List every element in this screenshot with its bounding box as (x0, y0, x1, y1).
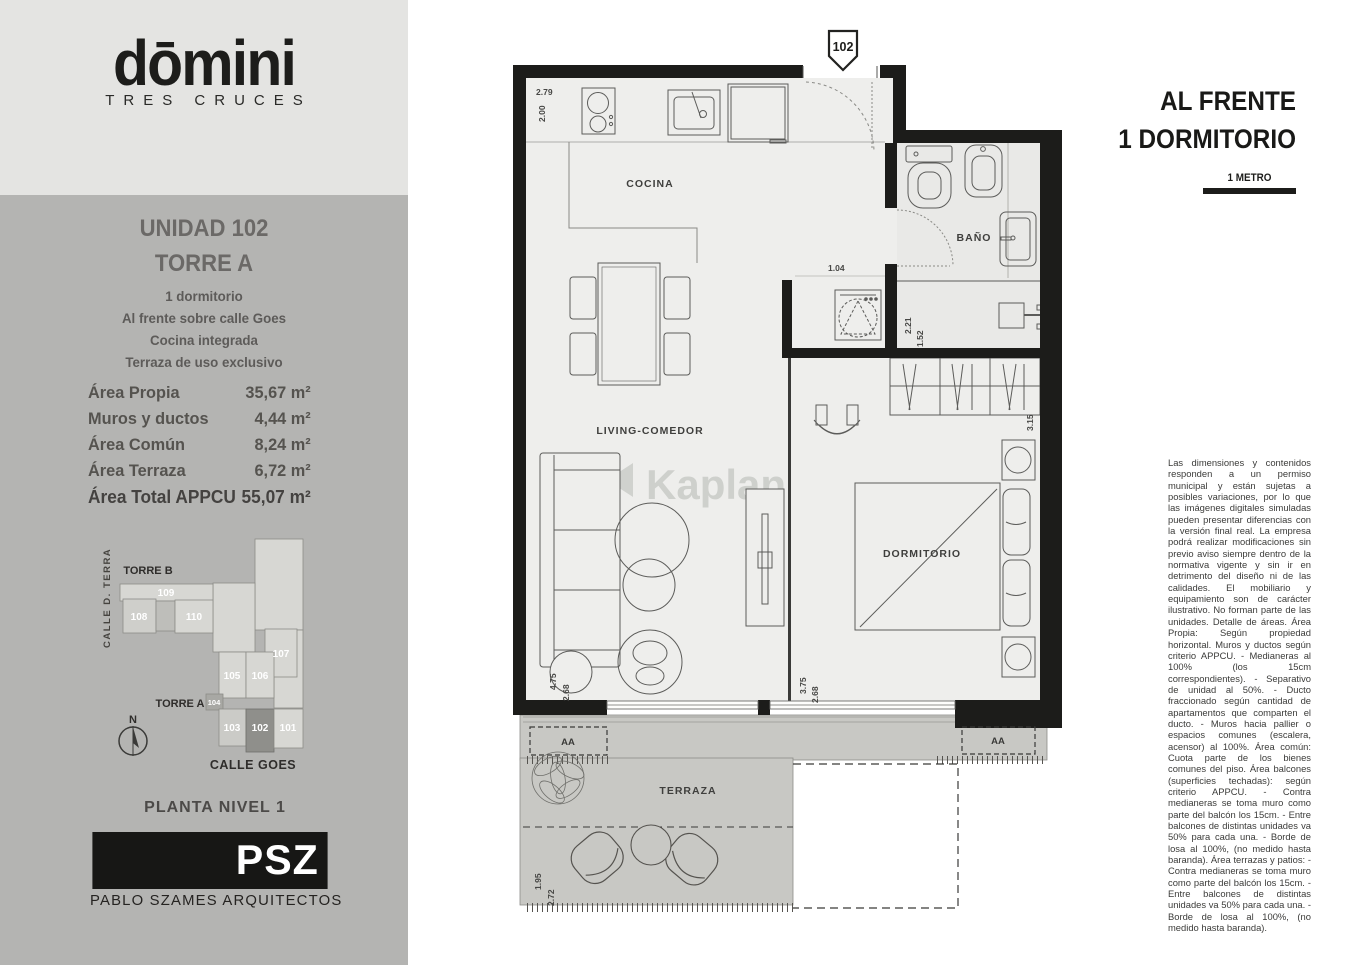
feature-item: Al frente sobre calle Goes (10, 307, 398, 329)
area-label: Área Total APPCU (88, 484, 236, 510)
calle-goes-label: CALLE GOES (210, 758, 296, 772)
areas-table: Área Propia 35,67 m² Muros y ductos 4,44… (88, 380, 320, 510)
area-value: 4,44 m² (254, 406, 310, 432)
plan-heading-line1: AL FRENTE (1066, 82, 1296, 120)
scale-label: 1 METRO (1208, 172, 1292, 184)
floor-plan: Kaplan (470, 10, 1080, 960)
dim-label: 2.79 (536, 87, 553, 97)
site-unit-label: 103 (224, 723, 241, 734)
terraza-label: TERRAZA (659, 785, 716, 797)
railing-hatch (933, 756, 1047, 764)
dormitorio-label: DORMITORIO (883, 548, 961, 560)
dim-label: 4.75 (548, 673, 558, 690)
bano-label: BAÑO (957, 231, 992, 244)
dim-label: 2.00 (537, 105, 547, 122)
unit-features: 1 dormitorio Al frente sobre calle Goes … (0, 285, 408, 373)
bathroom-floor (897, 143, 1040, 348)
feature-item: Cocina integrada (10, 329, 398, 351)
architect-block: PSZ PABLO SZAMES ARQUITECTOS (90, 832, 330, 909)
site-unit-label: 105 (224, 671, 241, 682)
wall-bath-top (893, 130, 1062, 143)
site-unit-label: 104 (208, 698, 221, 707)
site-unit-label: 107 (273, 649, 290, 660)
area-value: 55,07 m² (242, 484, 311, 510)
site-unit-label: 102 (252, 723, 269, 734)
site-core (156, 601, 175, 631)
north-label: N (129, 714, 137, 726)
partition-living-bedroom (788, 358, 791, 703)
railing-hatch (523, 903, 795, 912)
site-block (255, 539, 303, 630)
unit-marker-number: 102 (833, 40, 854, 54)
nightstand (1002, 440, 1035, 480)
brand-logo-block: dōmini TRES CRUCES (0, 0, 408, 195)
dim-label: 3.15 (1025, 414, 1035, 431)
unit-title: UNIDAD 102 (16, 215, 391, 243)
area-value: 8,24 m² (254, 432, 310, 458)
sofa (540, 453, 620, 693)
wall-bottom-post (758, 700, 770, 715)
site-block (213, 583, 255, 652)
brochure-sheet: dōmini TRES CRUCES UNIDAD 102 TORRE A 1 … (0, 0, 1365, 965)
tv-unit (746, 489, 784, 626)
area-label: Área Terraza (88, 458, 186, 484)
area-row: Área Propia 35,67 m² (88, 380, 311, 406)
area-row-total: Área Total APPCU 55,07 m² (88, 484, 311, 510)
sidebar: dōmini TRES CRUCES UNIDAD 102 TORRE A 1 … (0, 0, 408, 965)
dim-label: 1.04 (828, 263, 845, 273)
terrace-table (631, 825, 671, 865)
wall-bottom-right (955, 700, 1060, 728)
area-label: Área Común (88, 432, 185, 458)
exclusive-patio-outline (793, 764, 958, 908)
architect-logo: PSZ (92, 832, 327, 889)
area-row: Área Común 8,24 m² (88, 432, 311, 458)
unit-tower: TORRE A (16, 250, 391, 278)
torre-a-label: TORRE A (156, 698, 205, 710)
nightstand (1002, 637, 1035, 677)
plan-heading: AL FRENTE 1 DORMITORIO (1066, 82, 1296, 158)
railing-hatch (523, 756, 608, 764)
ac-label-right: AA (991, 736, 1005, 747)
area-value: 35,67 m² (245, 380, 310, 406)
site-key-plan: 109 108 110 107 105 106 104 103 102 101 … (85, 525, 335, 825)
site-unit-label: 109 (158, 588, 175, 599)
ac-label-left: AA (561, 737, 575, 748)
wall-right (1040, 130, 1062, 728)
window-band (607, 701, 955, 709)
living-label: LIVING-COMEDOR (596, 425, 703, 437)
area-label: Área Propia (88, 380, 180, 406)
exterior-mask (906, 60, 1066, 130)
dim-label: 2.21 (903, 317, 913, 334)
site-unit-label: 101 (280, 723, 297, 734)
wall-top (513, 65, 803, 78)
site-unit-label: 106 (252, 671, 269, 682)
torre-b-label: TORRE B (123, 565, 172, 577)
feature-item: 1 dormitorio (10, 285, 398, 307)
dim-label: 1.95 (533, 873, 543, 890)
dim-label: 1.52 (915, 330, 925, 347)
dim-label: 2.72 (546, 889, 556, 906)
planta-label: PLANTA NIVEL 1 (144, 799, 286, 816)
dim-label: 2.68 (810, 686, 820, 703)
area-row: Muros y ductos 4,44 m² (88, 406, 311, 432)
disclaimer-text: Las dimensiones y contenidos responden a… (1168, 457, 1311, 933)
area-label: Muros y ductos (88, 406, 209, 432)
brand-logo: dōmini (16, 28, 391, 98)
unit-marker: 102 (829, 31, 857, 70)
dim-label: 3.75 (798, 677, 808, 694)
scale-bar (1203, 188, 1296, 194)
feature-item: Terraza de uso exclusivo (10, 351, 398, 373)
site-unit-label: 110 (186, 612, 203, 623)
plan-heading-line2: 1 DORMITORIO (1066, 120, 1296, 158)
area-value: 6,72 m² (254, 458, 310, 484)
wall-bottom-left (513, 700, 607, 715)
wall-left (513, 65, 526, 715)
cocina-label: COCINA (626, 178, 673, 190)
terrace-floor (520, 715, 1047, 905)
area-row: Área Terraza 6,72 m² (88, 458, 311, 484)
site-unit-label: 108 (131, 612, 148, 623)
dim-label: 2.68 (561, 684, 571, 701)
calle-terra-label: CALLE D. TERRA (102, 548, 113, 648)
architect-name: PABLO SZAMES ARQUITECTOS (90, 892, 328, 909)
north-compass-icon: N (119, 714, 147, 756)
